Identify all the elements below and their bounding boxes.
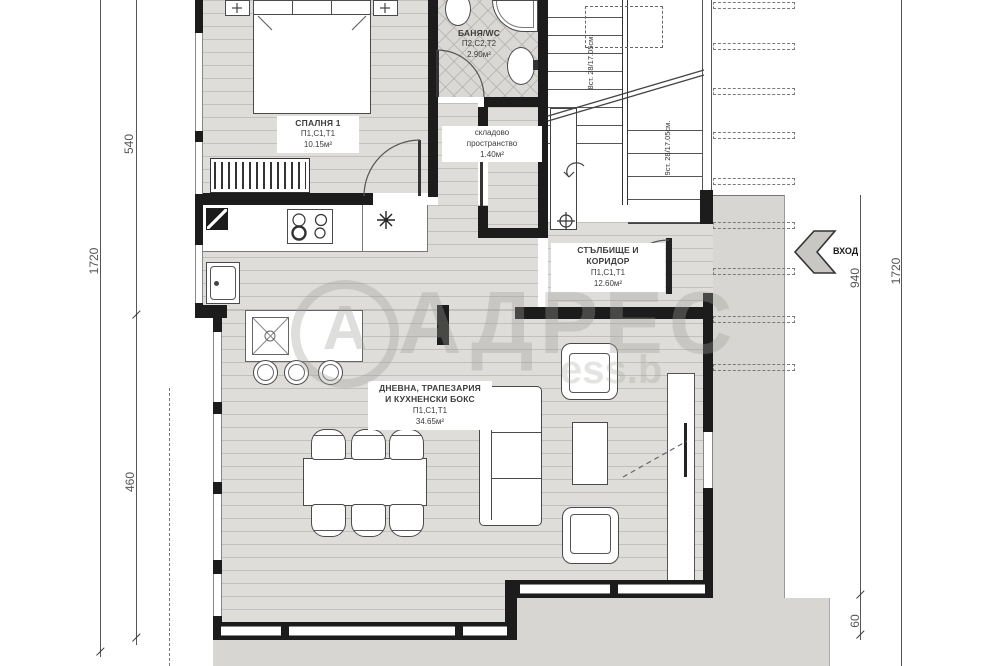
bathroom-layers: П2,С2,Т2 bbox=[444, 39, 514, 50]
armchair-bottom bbox=[562, 507, 619, 564]
living-name-1: ДНЕВНА, ТРАПЕЗАРИЯ bbox=[368, 383, 492, 394]
bar-stool-3 bbox=[318, 360, 343, 385]
living-label: ДНЕВНА, ТРАПЕЗАРИЯ И КУХНЕНСКИ БОКС П1,С… bbox=[368, 381, 492, 430]
kitchen-window bbox=[195, 245, 203, 303]
tv-cabinet bbox=[667, 373, 695, 582]
wall-bedroom-kitchen bbox=[203, 193, 373, 205]
bottom-band-post-3 bbox=[610, 580, 618, 598]
bed-headboard-line bbox=[253, 14, 371, 15]
pergola-bar-1 bbox=[713, 2, 795, 9]
bed-pillow-divider-2 bbox=[331, 0, 332, 14]
corridor-door-leaf bbox=[666, 238, 672, 294]
dining-chair-2 bbox=[351, 429, 386, 460]
sofa-cushion-line-2 bbox=[491, 478, 541, 479]
wall-left-step bbox=[195, 305, 227, 318]
dim-right-outer: 1720 bbox=[889, 241, 903, 301]
entrance-porch bbox=[713, 195, 785, 605]
bottom-band-post-1 bbox=[281, 622, 289, 640]
bed bbox=[253, 0, 371, 114]
corridor-label: СТЪЛБИЩЕ И КОРИДОР П1,С1,Т1 12.60м² bbox=[551, 243, 665, 292]
kitchen-counter-divider bbox=[362, 205, 363, 252]
living-name-2: И КУХНЕНСКИ БОКС bbox=[368, 394, 492, 405]
living-area: 34.65м² bbox=[368, 417, 492, 428]
radiator bbox=[210, 158, 310, 193]
wall-corridor-living-stub bbox=[437, 305, 449, 345]
dining-table bbox=[303, 458, 427, 506]
dim-left-bottom: 460 bbox=[123, 457, 137, 507]
living-layers: П1,С1,Т1 bbox=[368, 406, 492, 417]
bedroom-area: 10.15м² bbox=[277, 140, 359, 151]
bar-stool-1 bbox=[253, 360, 278, 385]
bar-stool-2 bbox=[284, 360, 309, 385]
stair-shaft bbox=[550, 108, 577, 230]
pergola-bar-7 bbox=[713, 268, 795, 275]
bedroom-label: СПАЛНЯ 1 П1,С1,Т1 10.15м² bbox=[277, 116, 359, 153]
dining-chair-3 bbox=[389, 429, 424, 460]
pergola-bar-5 bbox=[713, 178, 795, 185]
stair-flight-down-label: 9ст. 28/17.05см. bbox=[663, 93, 675, 203]
stairwell-outer-line bbox=[702, 0, 712, 192]
bathroom-door-leaf bbox=[436, 50, 439, 97]
dim-bottom-right: 60 bbox=[848, 606, 862, 636]
pergola-bar-2 bbox=[713, 43, 795, 50]
wall-storage-left-b bbox=[478, 206, 488, 230]
wall-right-entry-post bbox=[700, 190, 713, 224]
dining-chair-4 bbox=[311, 504, 346, 537]
wall-bedroom-bath bbox=[428, 0, 438, 197]
wall-stair-storage bbox=[538, 0, 548, 230]
bedroom-window-1 bbox=[195, 33, 203, 131]
pergola-bar-4 bbox=[713, 132, 795, 139]
dim-right-inner: 940 bbox=[848, 253, 862, 303]
bedroom-window-2 bbox=[195, 142, 203, 194]
storage-name-2: пространство bbox=[442, 139, 542, 150]
sofa-cushion-line-1 bbox=[491, 432, 541, 433]
kitchen-corner-unit bbox=[206, 208, 228, 230]
dim-left-outer: 1720 bbox=[87, 231, 101, 291]
kitchen-island-hob bbox=[252, 317, 289, 355]
floor-plan: 8ст. 28/17.05см. 9ст. 28/17.05см. bbox=[0, 0, 1000, 666]
bathroom-name: БАНЯ/WC bbox=[444, 28, 514, 39]
dim-line-right-outer bbox=[901, 0, 902, 666]
nightstand-right bbox=[373, 0, 398, 16]
pergola-bar-3 bbox=[713, 88, 795, 95]
armchair-top bbox=[561, 343, 618, 400]
storage-name-1: складово bbox=[442, 128, 542, 139]
corridor-name-2: КОРИДОР bbox=[551, 256, 665, 267]
kitchen-sink bbox=[206, 262, 240, 304]
boundary-dashed-line bbox=[169, 388, 171, 666]
wall-corridor-living bbox=[515, 307, 713, 319]
armchair-top-seat bbox=[569, 353, 610, 393]
terrace-right bbox=[517, 598, 830, 666]
radiator-fins bbox=[214, 162, 306, 189]
bedroom-layers: П1,С1,Т1 bbox=[277, 129, 359, 140]
bathroom-area: 2.90м² bbox=[444, 50, 514, 61]
terrace-left bbox=[213, 640, 517, 666]
stair-flight-up-label: 8ст. 28/17.05см. bbox=[586, 7, 598, 117]
dining-chair-1 bbox=[311, 429, 346, 460]
kitchen-sink-drain bbox=[214, 281, 219, 286]
corridor-area: 12.60м² bbox=[551, 279, 665, 290]
corridor-layers: П1,С1,Т1 bbox=[551, 268, 665, 279]
storage-area: 1.40м² bbox=[442, 150, 542, 161]
wall-bath-bottom bbox=[484, 97, 538, 107]
pergola-bar-9 bbox=[713, 364, 795, 371]
bedroom-door-leaf bbox=[418, 140, 421, 196]
nightstand-left bbox=[225, 0, 250, 16]
armchair-bottom-seat bbox=[570, 514, 611, 554]
dim-line-left-inner bbox=[136, 0, 137, 645]
dim-left-top: 540 bbox=[122, 119, 136, 169]
pergola-bar-8 bbox=[713, 316, 795, 323]
dining-chair-6 bbox=[389, 504, 424, 537]
dining-chair-5 bbox=[351, 504, 386, 537]
stove bbox=[287, 209, 333, 244]
storage-label: складово пространство 1.40м² bbox=[442, 126, 542, 162]
living-window-left-3 bbox=[213, 494, 222, 560]
living-window-bottom-left bbox=[221, 626, 507, 636]
tv-screen bbox=[684, 423, 687, 477]
bedroom-name: СПАЛНЯ 1 bbox=[277, 118, 359, 129]
coffee-table bbox=[572, 422, 608, 485]
bathroom-label: БАНЯ/WC П2,С2,Т2 2.90м² bbox=[444, 26, 514, 63]
living-window-left-4 bbox=[213, 574, 222, 616]
dim-line-left-outer bbox=[100, 0, 101, 657]
entrance-label: ВХОД bbox=[833, 246, 867, 256]
living-window-left-2 bbox=[213, 414, 222, 482]
pergola-bar-6 bbox=[713, 222, 795, 229]
living-window-right bbox=[703, 432, 713, 488]
living-window-left-1 bbox=[213, 332, 222, 402]
corridor-name-1: СТЪЛБИЩЕ И bbox=[551, 245, 665, 256]
bottom-band-post-2 bbox=[455, 622, 463, 640]
bed-pillow-divider-1 bbox=[292, 0, 293, 14]
